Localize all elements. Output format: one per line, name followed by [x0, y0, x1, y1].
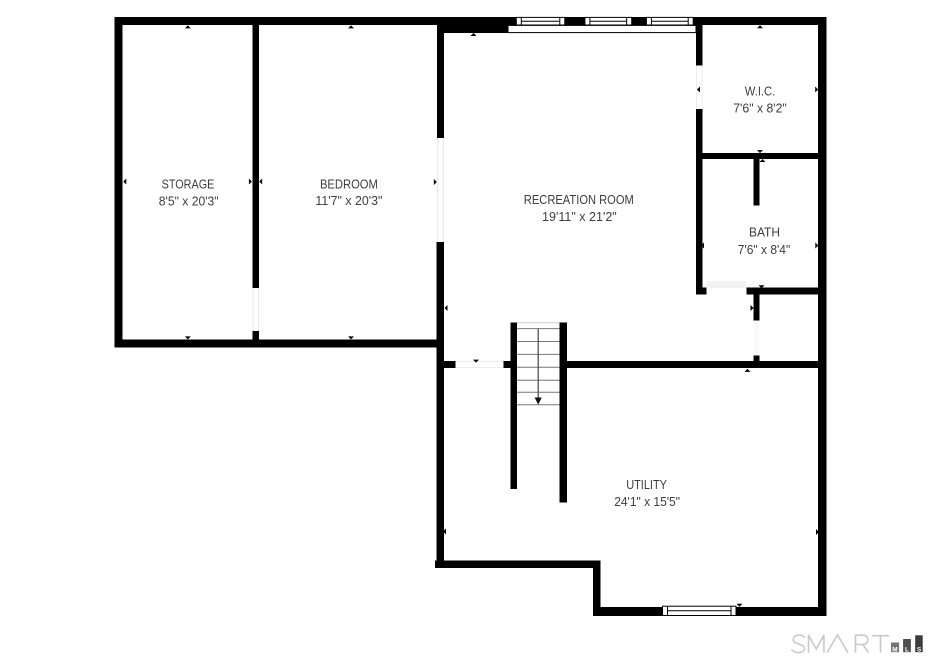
- svg-text:19'11" x 21'2": 19'11" x 21'2": [542, 209, 617, 224]
- svg-text:24'1" x 15'5": 24'1" x 15'5": [614, 494, 680, 509]
- svg-text:L: L: [905, 646, 909, 653]
- svg-text:STORAGE: STORAGE: [162, 177, 215, 192]
- svg-text:BATH: BATH: [749, 225, 780, 240]
- svg-text:11'7" x 20'3": 11'7" x 20'3": [315, 193, 382, 208]
- svg-text:W.I.C.: W.I.C.: [745, 84, 776, 99]
- svg-text:RECREATION ROOM: RECREATION ROOM: [524, 192, 634, 207]
- svg-text:UTILITY: UTILITY: [626, 477, 667, 492]
- svg-text:S: S: [917, 646, 922, 653]
- svg-text:7'6" x 8'2": 7'6" x 8'2": [733, 100, 787, 115]
- svg-text:7'6" x 8'4": 7'6" x 8'4": [738, 242, 791, 257]
- svg-text:M: M: [892, 646, 897, 653]
- svg-text:8'5" x 20'3": 8'5" x 20'3": [159, 194, 219, 209]
- svg-text:BEDROOM: BEDROOM: [320, 177, 378, 192]
